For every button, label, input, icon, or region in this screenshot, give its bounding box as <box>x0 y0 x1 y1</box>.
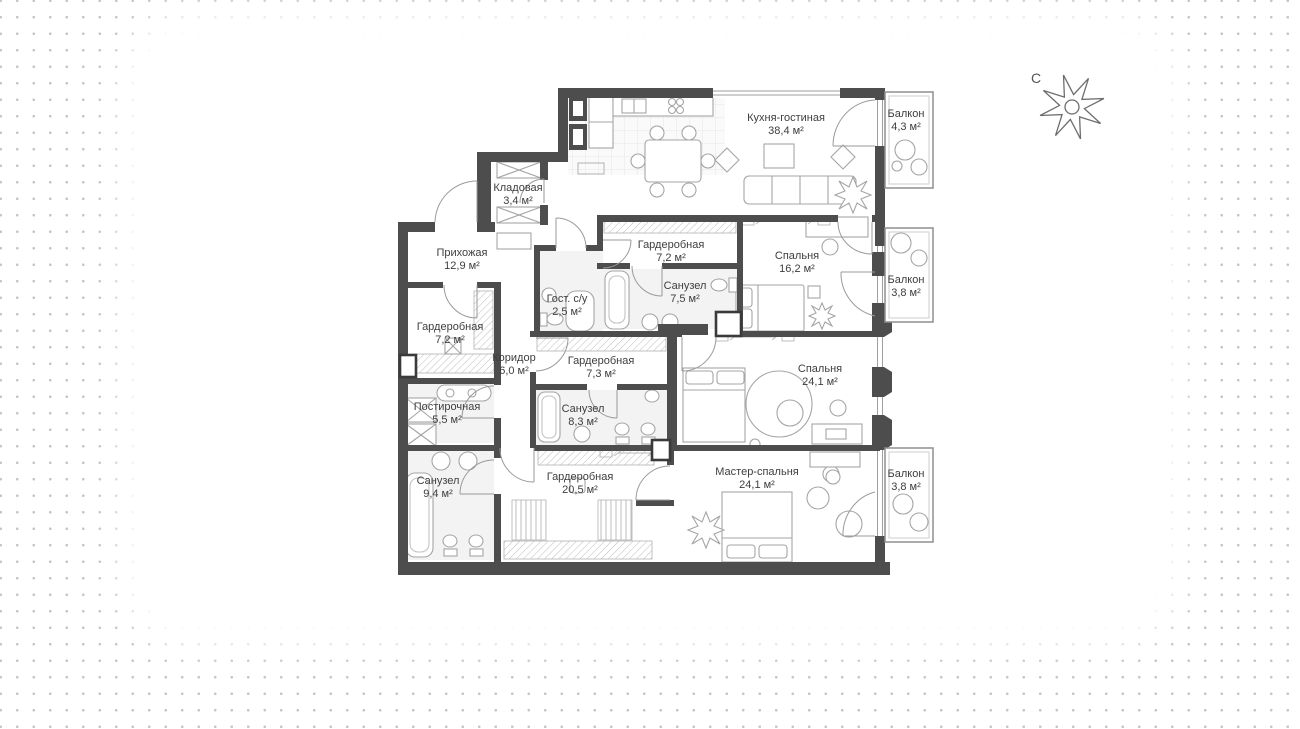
compass-rose: С <box>1031 70 1104 139</box>
floor-plan-drawing: С <box>0 0 1300 729</box>
balconies <box>885 92 933 542</box>
compass-north-label: С <box>1031 70 1041 86</box>
page-background: С Кухня-гостиная 38,4 м² Балкон 4,3 м² К… <box>0 0 1300 729</box>
